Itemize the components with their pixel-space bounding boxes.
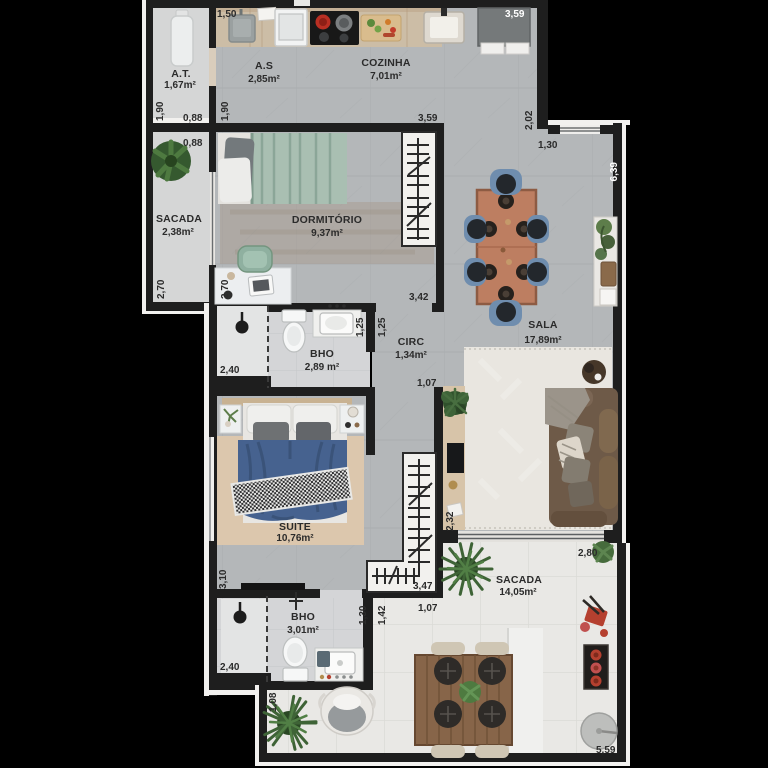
svg-text:1,50: 1,50 (217, 9, 237, 20)
svg-text:CIRC: CIRC (398, 336, 425, 348)
svg-text:3,59: 3,59 (418, 113, 438, 124)
svg-text:1,34m²: 1,34m² (395, 350, 427, 361)
svg-text:A.S: A.S (255, 60, 273, 72)
svg-text:BHO: BHO (291, 611, 315, 623)
svg-text:1,67m²: 1,67m² (164, 80, 196, 91)
svg-text:10,76m²: 10,76m² (276, 533, 314, 544)
svg-text:1,42: 1,42 (377, 605, 388, 625)
svg-text:2,80: 2,80 (578, 548, 598, 559)
svg-text:7,01m²: 7,01m² (370, 71, 402, 82)
svg-text:DORMITÓRIO: DORMITÓRIO (292, 213, 362, 226)
svg-text:2,70: 2,70 (220, 279, 231, 299)
svg-text:17,89m²: 17,89m² (524, 335, 562, 346)
svg-text:3,01m²: 3,01m² (287, 625, 319, 636)
svg-text:2,89 m²: 2,89 m² (305, 362, 340, 373)
svg-text:3,42: 3,42 (409, 292, 429, 303)
svg-text:0,88: 0,88 (183, 138, 203, 149)
svg-text:1,90: 1,90 (220, 101, 231, 121)
svg-text:2,70: 2,70 (156, 279, 167, 299)
svg-text:SACADA: SACADA (156, 213, 202, 225)
svg-text:2,40: 2,40 (220, 365, 240, 376)
svg-text:14,05m²: 14,05m² (499, 587, 537, 598)
svg-text:1,08: 1,08 (268, 692, 279, 712)
svg-text:1,30: 1,30 (538, 140, 558, 151)
svg-text:2,40: 2,40 (220, 662, 240, 673)
svg-text:1,07: 1,07 (418, 603, 438, 614)
svg-text:1,07: 1,07 (417, 378, 437, 389)
svg-text:9,37m²: 9,37m² (311, 228, 343, 239)
svg-text:2,02: 2,02 (524, 110, 535, 130)
svg-text:0,88: 0,88 (183, 113, 203, 124)
svg-text:1,25: 1,25 (377, 317, 388, 337)
svg-text:COZINHA: COZINHA (361, 57, 410, 69)
svg-text:1,90: 1,90 (155, 101, 166, 121)
svg-text:5,59: 5,59 (596, 745, 616, 756)
svg-text:3,59: 3,59 (505, 9, 525, 20)
svg-text:3,10: 3,10 (218, 569, 229, 589)
svg-text:3,47: 3,47 (413, 581, 433, 592)
svg-text:A.T.: A.T. (171, 68, 190, 80)
svg-text:SUITE: SUITE (279, 521, 311, 533)
svg-text:6,39: 6,39 (609, 162, 620, 182)
svg-text:2,38m²: 2,38m² (162, 227, 194, 238)
svg-text:BHO: BHO (310, 348, 334, 360)
svg-text:1,25: 1,25 (355, 317, 366, 337)
svg-text:SACADA: SACADA (496, 574, 542, 586)
svg-text:2,85m²: 2,85m² (248, 74, 280, 85)
svg-text:2,32: 2,32 (445, 511, 456, 531)
svg-text:SALA: SALA (528, 319, 558, 331)
svg-text:1,30: 1,30 (358, 605, 369, 625)
